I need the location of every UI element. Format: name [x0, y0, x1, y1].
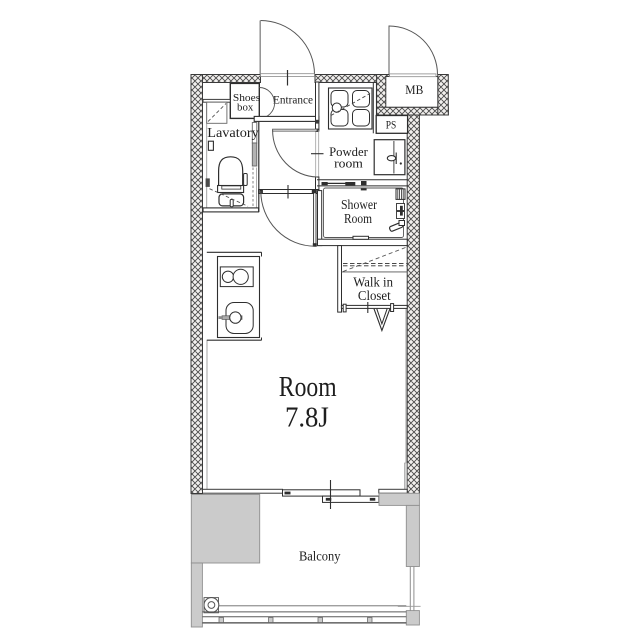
svg-text:PS: PS [386, 117, 397, 131]
svg-text:Room: Room [344, 211, 372, 226]
svg-text:Lavatory: Lavatory [207, 125, 259, 140]
svg-text:7.8J: 7.8J [285, 401, 329, 433]
svg-text:MB: MB [405, 82, 423, 97]
svg-text:Room: Room [279, 372, 337, 403]
svg-text:room: room [334, 155, 363, 170]
svg-text:box: box [237, 103, 254, 114]
svg-text:Closet: Closet [358, 288, 391, 303]
svg-text:Entrance: Entrance [273, 93, 313, 107]
svg-text:Balcony: Balcony [299, 550, 341, 565]
svg-text:Shower: Shower [341, 197, 377, 212]
